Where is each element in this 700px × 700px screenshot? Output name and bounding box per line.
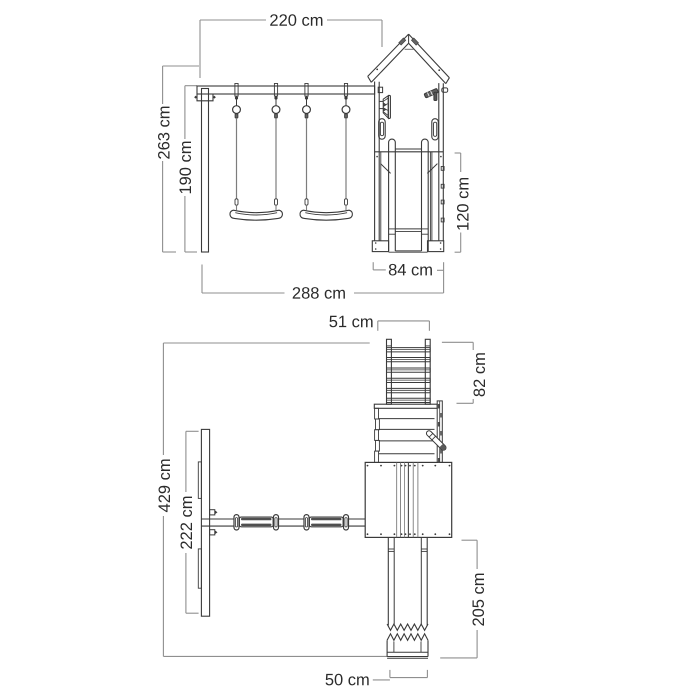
svg-text:220 cm: 220 cm xyxy=(269,12,323,30)
svg-text:84 cm: 84 cm xyxy=(388,261,433,279)
svg-text:190 cm: 190 cm xyxy=(177,140,195,194)
svg-text:288 cm: 288 cm xyxy=(292,285,346,303)
svg-text:222 cm: 222 cm xyxy=(178,496,196,550)
svg-text:205 cm: 205 cm xyxy=(470,572,488,626)
svg-text:120 cm: 120 cm xyxy=(455,177,473,231)
svg-text:82 cm: 82 cm xyxy=(471,352,489,397)
svg-text:51 cm: 51 cm xyxy=(329,313,374,331)
svg-text:263 cm: 263 cm xyxy=(155,105,173,159)
svg-text:50 cm: 50 cm xyxy=(325,671,370,689)
svg-text:429 cm: 429 cm xyxy=(156,458,174,512)
